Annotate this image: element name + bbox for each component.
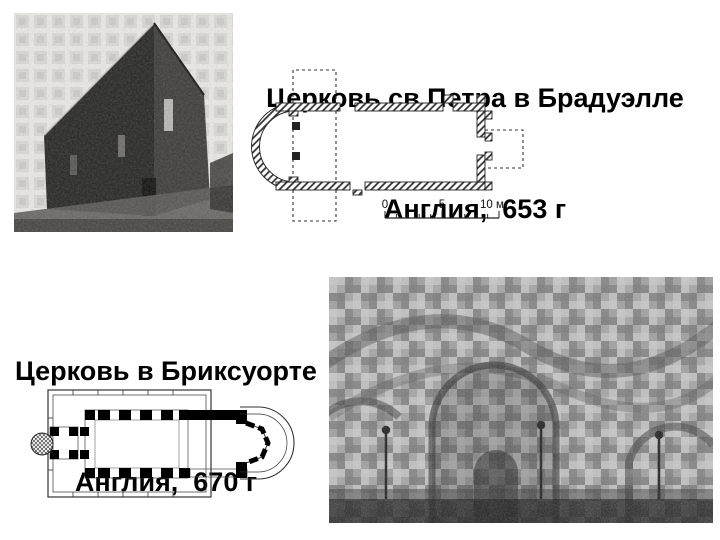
brixworth-interior-photo	[329, 277, 713, 523]
outer-aisle-walls	[48, 390, 211, 497]
scale-label-10m: 10 м	[480, 199, 504, 211]
film-grain-overlay	[329, 277, 713, 523]
brixworth-photo-graphic	[329, 277, 713, 523]
apse-wall	[252, 103, 295, 190]
stair-turret	[31, 433, 53, 455]
nave-wall-lines	[50, 410, 247, 478]
bradwell-floor-plan: 0 5 10 м	[248, 64, 533, 229]
brixworth-floor-plan	[28, 383, 308, 508]
bradwell-exterior-photo	[14, 13, 233, 232]
scale-label-5: 5	[439, 199, 445, 211]
slide-canvas: Церковь св.Петра в Брадуэлле Англия, 653…	[0, 0, 720, 540]
bradwell-photo-graphic	[14, 13, 233, 232]
scale-bar: 0 5 10 м	[382, 199, 504, 218]
scale-label-0: 0	[382, 199, 388, 211]
brixworth-plan-graphic	[28, 383, 308, 508]
film-grain-overlay	[14, 13, 233, 232]
bradwell-plan-graphic: 0 5 10 м	[248, 64, 533, 229]
apse-with-ambulatory	[240, 407, 294, 479]
masonry-walls	[252, 95, 492, 195]
